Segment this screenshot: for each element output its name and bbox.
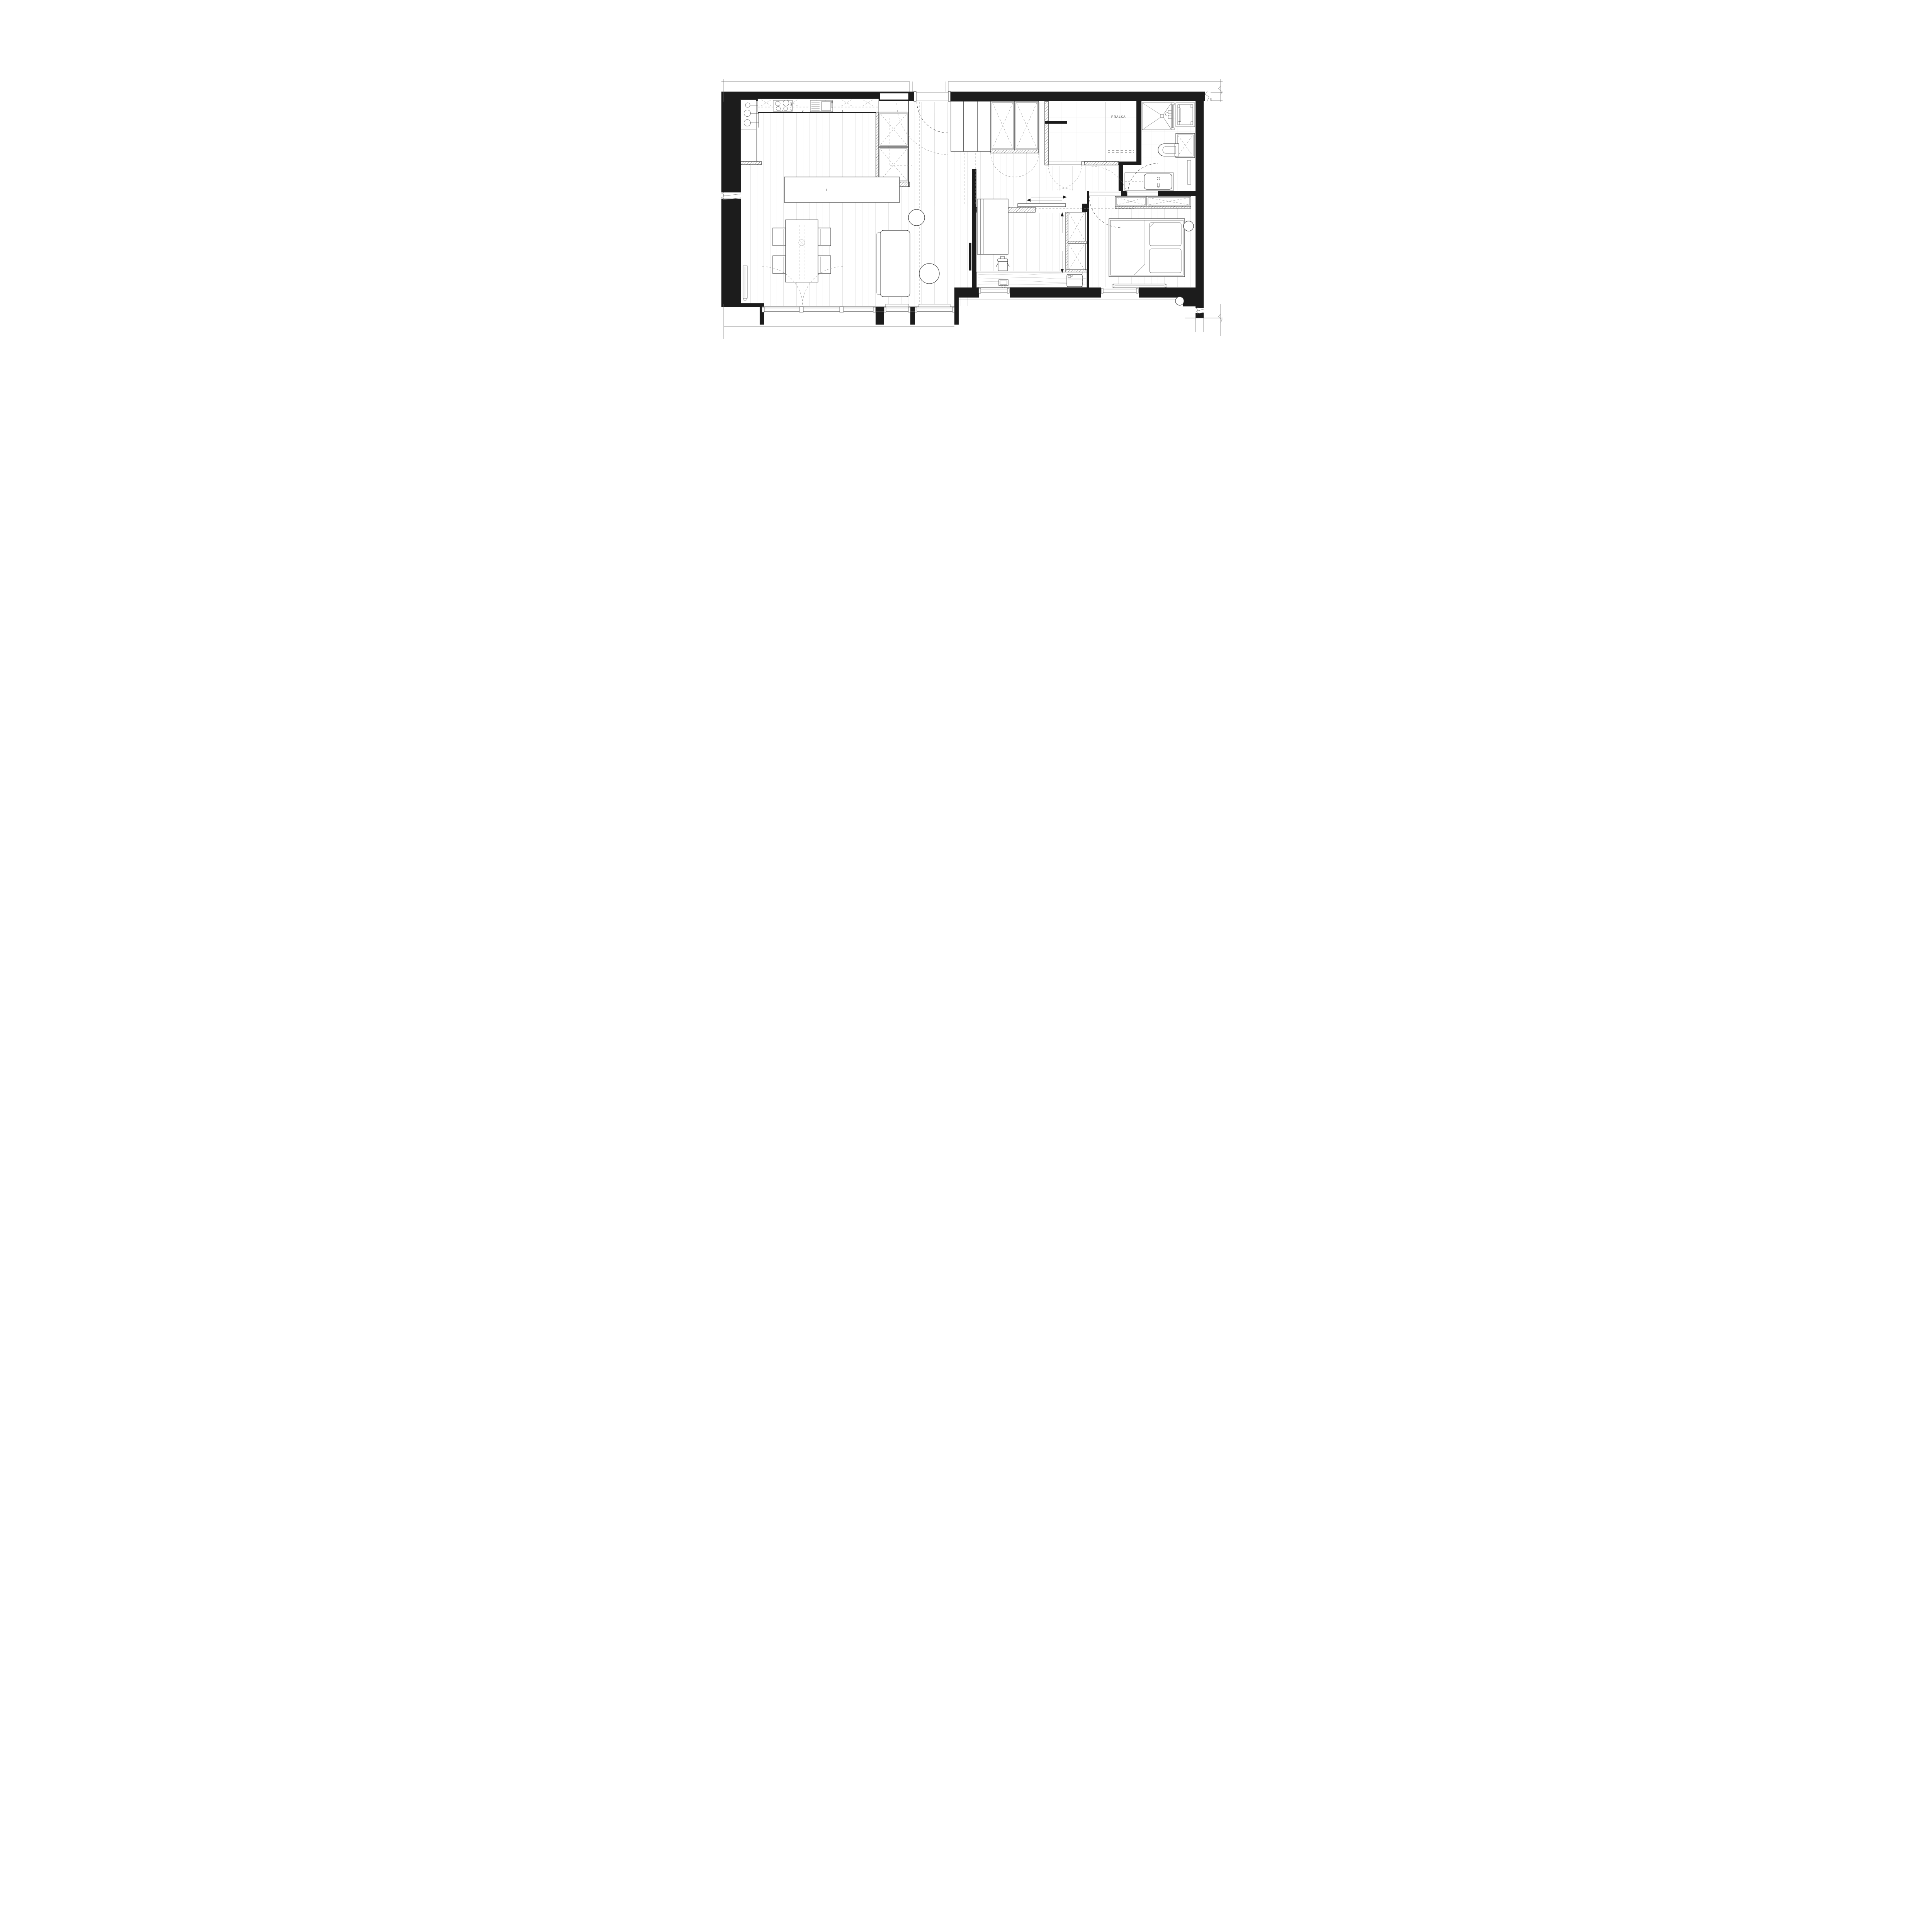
radiator-bedroom [1112,284,1167,287]
faucet-icon [831,103,833,107]
utility-floor-tiles [1048,102,1136,162]
pouf [1184,221,1194,231]
bedroom-wardrobe [1115,196,1191,208]
shower-drain [1160,114,1163,117]
hall-closet-open [951,101,991,151]
dining-table [786,220,818,282]
floor-plan-sheet: P Z L L [665,0,1267,426]
utility-label: PRALKA [1111,115,1126,119]
vanity [1125,173,1173,191]
sofa [877,230,910,297]
wall-bathroom-west-upper [1136,101,1141,162]
kitchen-tall-cabinets [876,101,910,187]
laptop [1067,274,1082,287]
window-living-large [762,307,876,312]
pouf [1175,297,1184,305]
radiator [886,304,909,307]
cooktop [773,100,793,112]
wall-top-right [948,92,1211,101]
radiator [919,304,950,307]
kitchen-return-hatch [741,162,762,165]
window-living-sofa [915,304,954,312]
double-bed [1109,219,1185,277]
coffee-table [908,209,925,226]
dining-chair [773,256,786,274]
window-mullion [840,307,844,312]
island-label: L [826,188,828,192]
utility-south-wall [1084,162,1119,165]
kitchen-sink [810,100,833,112]
dining-chair [818,228,831,246]
coffee-table [919,264,939,284]
pillow [1150,249,1181,273]
cooktop-label: P [781,109,783,113]
counter-label: L [842,109,844,113]
wall-bathroom-west-lower [1119,162,1123,191]
kitchen-island: L [784,177,900,202]
window-mullion [799,307,803,312]
wall-hall-utility [1045,101,1048,165]
towel-radiator [1187,160,1191,184]
entry-door-jamb [948,92,951,101]
window-office [979,288,1009,293]
bathroom-shaft-cabinet [1176,103,1195,127]
sink-label: Z [802,109,804,113]
toilet [1158,144,1179,156]
window-bedroom [1101,288,1138,293]
utility-stub-wall [1045,121,1067,124]
kitchen-counter: P Z L [758,99,879,113]
dining-chair [773,228,786,246]
window-living-small [884,304,910,312]
floor-plan-drawing: P Z L L [665,0,1267,426]
corridor-floor [1045,166,1119,191]
tv [969,243,971,270]
basin-drain [1157,177,1160,180]
wall-bedroom-west [1087,191,1089,287]
shower [1142,103,1174,130]
single-bed [977,199,1008,254]
pillow [1150,223,1181,246]
office-wardrobe [1061,212,1087,273]
entry-door-jamb [914,92,916,101]
partition-living-office [972,169,976,287]
radiator-living [743,266,747,300]
wall-right [1196,98,1204,318]
